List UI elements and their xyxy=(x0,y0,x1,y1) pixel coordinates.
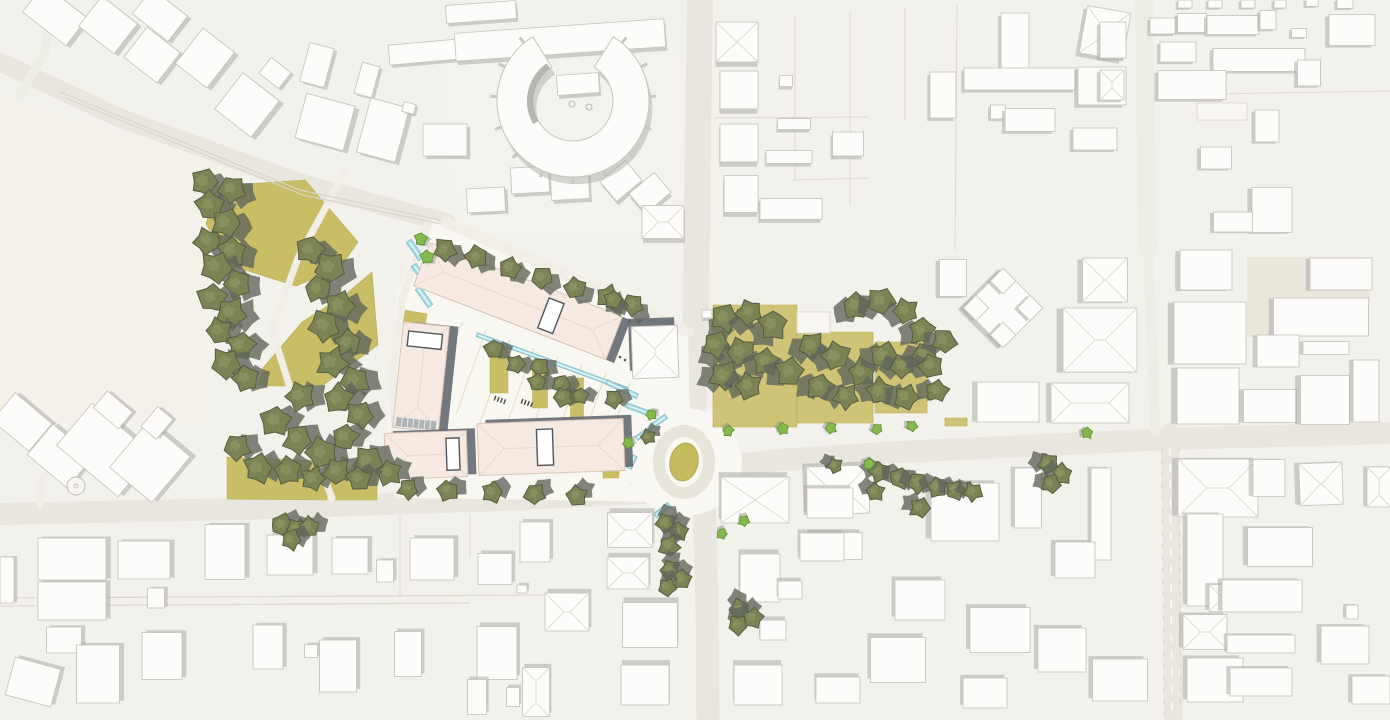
building xyxy=(1253,460,1285,497)
building xyxy=(778,119,811,130)
building xyxy=(720,71,758,109)
site-building xyxy=(631,325,679,379)
building xyxy=(1222,580,1302,612)
building xyxy=(423,124,467,156)
building xyxy=(507,688,520,707)
lawn xyxy=(945,418,967,426)
building-outline xyxy=(1197,103,1247,120)
building xyxy=(1292,29,1307,38)
building-roof xyxy=(1352,676,1390,704)
building xyxy=(545,593,589,631)
building-roof xyxy=(1005,109,1055,132)
building-roof xyxy=(1253,460,1285,497)
building xyxy=(963,678,1007,708)
building-outline xyxy=(797,312,830,333)
fountain xyxy=(67,477,85,495)
building-roof xyxy=(1244,390,1297,423)
building-roof xyxy=(0,557,14,603)
building xyxy=(205,525,245,580)
building-roof xyxy=(1306,0,1318,7)
building-roof xyxy=(970,608,1030,653)
building xyxy=(724,176,758,213)
building xyxy=(1150,18,1176,34)
building xyxy=(0,557,14,603)
building-roof xyxy=(1208,0,1222,8)
building-roof xyxy=(1329,15,1375,46)
building xyxy=(1227,635,1295,653)
building-roof xyxy=(816,677,860,703)
building-roof xyxy=(1303,342,1349,355)
building-roof xyxy=(1213,49,1305,72)
building-roof xyxy=(478,554,512,585)
building xyxy=(148,588,165,608)
building-roof xyxy=(963,678,1007,708)
building xyxy=(1208,0,1222,8)
building xyxy=(970,608,1030,653)
building xyxy=(1252,188,1292,233)
building xyxy=(1178,459,1258,517)
building xyxy=(1158,71,1226,100)
building-roof xyxy=(807,488,853,518)
building xyxy=(766,151,812,164)
building-roof xyxy=(1160,42,1196,62)
figure-dot xyxy=(619,356,622,359)
building xyxy=(1005,109,1055,132)
building xyxy=(1241,0,1255,8)
building-roof xyxy=(1100,22,1126,58)
building xyxy=(1001,13,1029,71)
building-roof xyxy=(520,522,550,562)
building-roof xyxy=(778,581,802,599)
building-roof xyxy=(205,525,245,580)
building-roof xyxy=(1214,212,1253,232)
building xyxy=(1214,212,1253,232)
building-roof xyxy=(1260,11,1276,30)
building xyxy=(1298,60,1321,86)
building-roof xyxy=(148,588,165,608)
skylight xyxy=(536,429,553,466)
building xyxy=(800,533,844,561)
building xyxy=(520,522,550,562)
building xyxy=(816,677,860,703)
building xyxy=(477,627,517,680)
building-roof xyxy=(118,541,170,579)
building xyxy=(1160,42,1196,62)
building xyxy=(1274,298,1369,336)
building xyxy=(253,625,283,669)
building xyxy=(833,132,864,156)
building xyxy=(1180,250,1232,290)
building-roof xyxy=(1230,668,1292,696)
building xyxy=(332,538,368,574)
building-roof xyxy=(253,625,283,669)
building xyxy=(410,538,454,580)
building-roof xyxy=(1201,147,1232,169)
building-roof xyxy=(778,119,811,130)
building-roof xyxy=(1274,0,1286,8)
building xyxy=(556,73,599,96)
building-roof xyxy=(1150,18,1176,34)
building-roof xyxy=(305,645,318,658)
building xyxy=(702,310,712,318)
skylight xyxy=(407,331,442,349)
building-roof xyxy=(1174,302,1246,364)
building xyxy=(1301,376,1350,425)
building xyxy=(1367,467,1390,507)
building-roof xyxy=(377,560,394,582)
building-roof xyxy=(724,176,758,213)
building xyxy=(77,645,120,703)
building xyxy=(395,632,422,677)
building-roof xyxy=(1038,628,1086,672)
building-roof xyxy=(1337,0,1353,9)
building xyxy=(478,554,512,585)
building-roof xyxy=(1298,60,1321,86)
building xyxy=(305,645,318,658)
building-roof xyxy=(77,645,120,703)
building-roof xyxy=(1353,360,1379,422)
building xyxy=(1178,14,1207,33)
building-roof xyxy=(621,665,669,705)
building-roof xyxy=(1255,110,1279,142)
building-roof xyxy=(556,73,599,96)
building xyxy=(1310,258,1372,290)
building xyxy=(1274,0,1286,8)
building-roof xyxy=(734,665,782,705)
building xyxy=(142,633,182,680)
building-roof xyxy=(468,680,487,715)
building xyxy=(1244,390,1297,423)
building xyxy=(38,582,106,620)
building xyxy=(1063,308,1137,372)
building xyxy=(623,603,678,648)
building xyxy=(621,665,669,705)
building xyxy=(517,585,527,593)
building-roof xyxy=(477,627,517,680)
building xyxy=(721,477,789,523)
building-roof xyxy=(964,68,1076,90)
building-roof xyxy=(1321,626,1369,664)
road xyxy=(693,0,700,430)
building-roof xyxy=(1093,659,1148,701)
building-roof xyxy=(702,310,712,318)
building xyxy=(1055,542,1095,578)
building-roof xyxy=(1177,368,1239,424)
building xyxy=(1177,368,1239,424)
building xyxy=(118,541,170,579)
building-roof xyxy=(1001,13,1029,71)
building xyxy=(523,668,550,717)
building xyxy=(1051,383,1129,423)
building xyxy=(734,665,782,705)
building xyxy=(1038,628,1086,672)
building xyxy=(642,206,684,239)
building-roof xyxy=(1241,0,1255,8)
building-roof xyxy=(1073,128,1117,150)
building xyxy=(607,557,649,589)
building-roof xyxy=(720,71,758,109)
building xyxy=(964,68,1076,90)
building-roof xyxy=(142,633,182,680)
building-roof xyxy=(410,538,454,580)
masterplan-rendering xyxy=(0,0,1390,720)
building xyxy=(1352,676,1390,704)
building xyxy=(807,488,853,518)
building-roof xyxy=(38,538,106,580)
building-roof xyxy=(760,199,822,220)
building xyxy=(1213,49,1305,72)
building-roof xyxy=(320,640,357,692)
building xyxy=(760,620,786,640)
building-roof xyxy=(871,638,926,683)
building xyxy=(1255,110,1279,142)
road xyxy=(704,495,708,720)
building xyxy=(1353,360,1379,422)
building xyxy=(760,199,822,220)
building xyxy=(466,187,505,213)
building xyxy=(377,560,394,582)
building-roof xyxy=(1227,635,1295,653)
building-roof xyxy=(833,132,864,156)
building-roof xyxy=(1252,188,1292,233)
building-roof xyxy=(977,382,1039,422)
building-roof xyxy=(895,580,945,620)
building-roof xyxy=(332,538,368,574)
building-roof xyxy=(1055,542,1095,578)
building xyxy=(1201,147,1232,169)
building-roof xyxy=(1180,250,1232,290)
building xyxy=(1073,128,1117,150)
building-roof xyxy=(800,533,844,561)
building-roof xyxy=(930,72,956,118)
building xyxy=(780,76,793,87)
building xyxy=(1100,22,1126,58)
building xyxy=(1257,335,1299,367)
building xyxy=(778,581,802,599)
site-building xyxy=(477,418,625,475)
road xyxy=(1144,0,1148,250)
building-roof xyxy=(423,124,467,156)
building xyxy=(871,638,926,683)
skylight xyxy=(446,438,460,470)
building-roof xyxy=(760,620,786,640)
building xyxy=(1303,342,1349,355)
building-roof xyxy=(1158,71,1226,100)
building-roof xyxy=(1178,0,1192,8)
site-plan-canvas xyxy=(0,0,1390,720)
building-roof xyxy=(1222,580,1302,612)
building-roof xyxy=(395,632,422,677)
building xyxy=(1174,302,1246,364)
building-roof xyxy=(766,151,812,164)
building xyxy=(1299,462,1343,505)
building-roof xyxy=(720,124,758,162)
building xyxy=(1083,258,1128,302)
building xyxy=(895,580,945,620)
building xyxy=(320,640,357,692)
building xyxy=(1346,605,1358,619)
building-roof xyxy=(1178,14,1207,33)
building-roof xyxy=(780,76,793,87)
building xyxy=(468,680,487,715)
building xyxy=(720,124,758,162)
building-roof xyxy=(1257,335,1299,367)
building xyxy=(608,513,653,548)
building xyxy=(1260,11,1276,30)
building xyxy=(1207,16,1259,35)
building xyxy=(1230,668,1292,696)
building-roof xyxy=(623,603,678,648)
building-roof xyxy=(507,688,520,707)
building xyxy=(1183,615,1227,650)
figure-dot xyxy=(624,359,627,362)
building-roof xyxy=(1248,528,1313,567)
building-roof xyxy=(1310,258,1372,290)
building xyxy=(1337,0,1353,9)
building-roof xyxy=(1207,16,1259,35)
building xyxy=(716,22,758,62)
building xyxy=(38,538,106,580)
building-roof xyxy=(1292,29,1307,38)
building-roof xyxy=(517,585,527,593)
building xyxy=(1306,0,1318,7)
building-roof xyxy=(1301,376,1350,425)
building xyxy=(940,260,967,297)
building xyxy=(1321,626,1369,664)
building xyxy=(1178,0,1192,8)
building-roof xyxy=(38,582,106,620)
building xyxy=(1329,15,1375,46)
building-roof xyxy=(1346,605,1358,619)
building xyxy=(1100,70,1124,100)
building xyxy=(930,72,956,118)
building-roof xyxy=(940,260,967,297)
building-roof xyxy=(1274,298,1369,336)
figure-dot xyxy=(730,385,733,388)
building xyxy=(1093,659,1148,701)
building xyxy=(977,382,1039,422)
building-roof xyxy=(466,187,505,213)
building xyxy=(1248,528,1313,567)
